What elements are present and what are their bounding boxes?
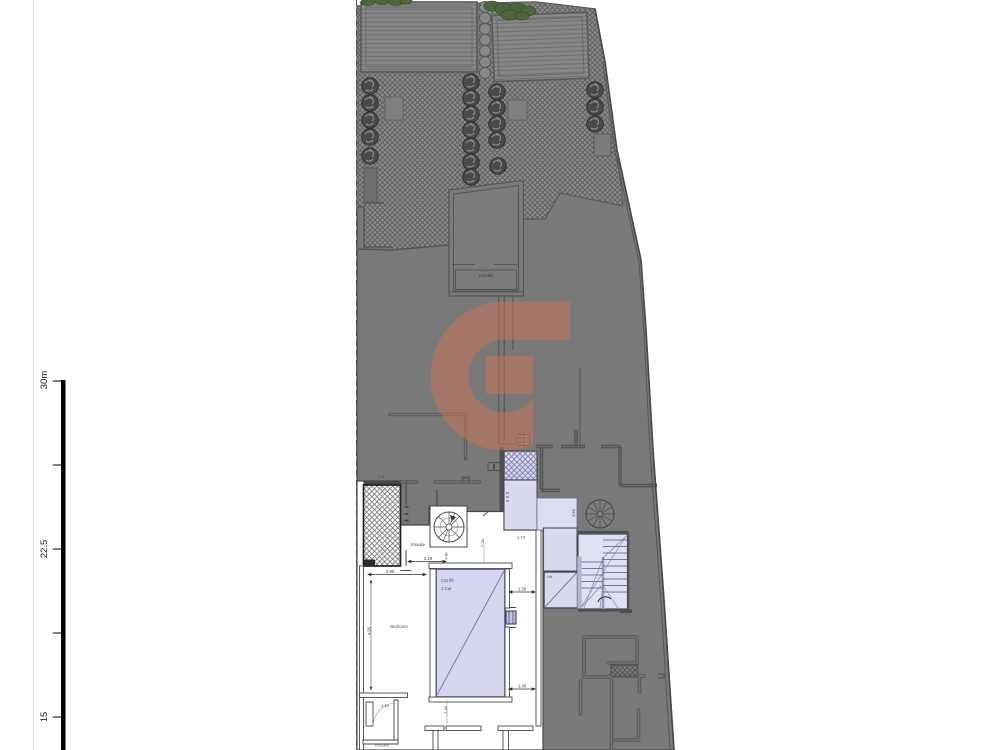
svg-text:Ensuite: Ensuite [375,743,390,748]
svg-text:2.90: 2.90 [386,569,395,574]
svg-text:Bedroom: Bedroom [390,624,408,629]
svg-text:22.5: 22.5 [39,540,50,559]
svg-text:2.19: 2.19 [424,556,433,561]
svg-text:3.18: 3.18 [378,475,385,479]
svg-text:15: 15 [39,712,50,723]
svg-text:1.30: 1.30 [518,684,527,689]
svg-text:3.55: 3.55 [571,508,576,517]
svg-text:Ensuite: Ensuite [411,542,426,547]
svg-text:1.30: 1.30 [518,587,527,592]
svg-text:0.90: 0.90 [445,553,449,560]
svg-text:1 Car: 1 Car [441,586,452,591]
svg-text:1.10: 1.10 [381,703,390,708]
svg-text:2.28: 2.28 [480,538,485,547]
svg-text:Car lift: Car lift [441,578,454,583]
svg-text:1.19: 1.19 [517,535,526,540]
svg-text:Ensuite: Ensuite [479,273,494,278]
svg-text:30m: 30m [39,371,50,390]
